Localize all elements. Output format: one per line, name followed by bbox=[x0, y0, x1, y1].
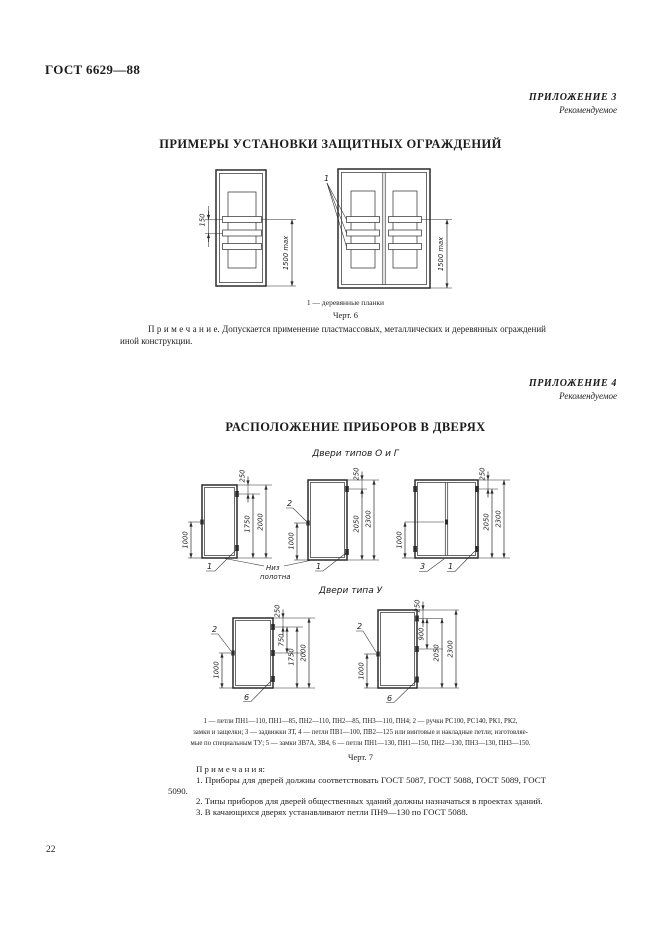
door-b: 250 2050 2300 1000 2 1 bbox=[286, 468, 379, 571]
appendix-3-label: ПРИЛОЖЕНИЕ 3 bbox=[529, 92, 617, 104]
door-c-dim-top: 250 bbox=[479, 468, 487, 481]
figure-6-label: Черт. 6 bbox=[30, 310, 661, 320]
appendix-4-notes: П р и м е ч а н и я: 1. Приборы для двер… bbox=[168, 764, 546, 818]
door-group-1-title: Двери типов О и Г bbox=[50, 449, 661, 459]
leaf-bottom-label: Низ полотна bbox=[225, 559, 310, 582]
legend-line-3: мые по специальным ТУ; 5 — замки ЗВ7А, З… bbox=[60, 738, 661, 749]
door-d-dim-hinge: 1750 bbox=[288, 648, 296, 665]
figure-7-row1-drawing: 250 1750 2000 1000 1 Низ полотна 250 205… bbox=[180, 462, 530, 588]
note-2: 2. Типы приборов для дверей общественных… bbox=[168, 796, 546, 807]
note-3: 3. В качающихся дверях устанавливают пет… bbox=[168, 807, 546, 818]
figure-7-legend: 1 — петли ПН1—110, ПН1—85, ПН2—110, ПН2—… bbox=[60, 716, 661, 749]
door-a-callout-hinge: 1 bbox=[207, 562, 212, 571]
door-a-dim-hinge: 1750 bbox=[244, 515, 252, 532]
door-d-dim-mid: 750 bbox=[278, 634, 286, 647]
fig6-double-door bbox=[338, 169, 430, 288]
legend-line-2: замки и защелки; 3 — задвижки ЗТ, 4 — пе… bbox=[60, 727, 661, 738]
door-b-dim-full: 2300 bbox=[365, 510, 373, 527]
fig6-dim-1500-right: 1500 max bbox=[422, 220, 453, 289]
appendix-3-note: П р и м е ч а н и е. Допускается примене… bbox=[120, 324, 546, 347]
door-d-callout-handle: 2 bbox=[212, 625, 217, 634]
appendix-4-label: ПРИЛОЖЕНИЕ 4 bbox=[529, 378, 617, 390]
fig6-dim-height-left-text: 1500 max bbox=[282, 235, 290, 270]
fig6-dim-spacing-text: 150 bbox=[199, 214, 207, 227]
door-b-callout-handle: 2 bbox=[287, 499, 292, 508]
door-e-dim-top: 250 bbox=[414, 600, 422, 613]
door-b-dim-hinge: 2050 bbox=[353, 515, 361, 532]
appendix-3-sublabel: Рекомендуемое bbox=[529, 104, 617, 116]
door-c-dim-handle: 1000 bbox=[396, 531, 404, 548]
door-c-dim-hinge: 2050 bbox=[483, 513, 491, 530]
figure-7-label: Черт. 7 bbox=[60, 752, 661, 762]
door-c: 1000 250 2050 2300 3 1 bbox=[396, 468, 511, 572]
fig6-dim-150: 150 bbox=[199, 206, 223, 247]
fig6-dim-height-right-text: 1500 max bbox=[437, 236, 445, 271]
figure-6-caption: 1 — деревянные планки bbox=[30, 298, 661, 307]
figure-6-drawing: 150 1500 max 1 1500 max bbox=[180, 162, 470, 302]
door-b-dim-handle: 1000 bbox=[288, 532, 296, 549]
door-c-dim-full: 2300 bbox=[495, 510, 503, 527]
appendix-4-heading: ПРИЛОЖЕНИЕ 4 Рекомендуемое bbox=[529, 378, 617, 402]
door-group-2-title: Двери типа У bbox=[40, 586, 661, 596]
door-c-callout-hinge: 1 bbox=[448, 562, 453, 571]
document-number: ГОСТ 6629—88 bbox=[45, 62, 140, 78]
note-1: 1. Приборы для дверей должны соответство… bbox=[168, 775, 546, 797]
appendix-4-title: РАСПОЛОЖЕНИЕ ПРИБОРОВ В ДВЕРЯХ bbox=[50, 420, 661, 435]
door-b-callout-hinge: 1 bbox=[316, 562, 321, 571]
appendix-4-sublabel: Рекомендуемое bbox=[529, 390, 617, 402]
door-e: 250 900 2050 2300 1000 2 6 bbox=[356, 600, 459, 703]
door-a-dim-full: 2000 bbox=[257, 513, 265, 530]
door-d: 250 750 1750 2000 1000 2 6 bbox=[211, 605, 315, 702]
door-a-dim-handle: 1000 bbox=[182, 531, 190, 548]
page-number: 22 bbox=[46, 845, 56, 855]
door-e-dim-mid: 900 bbox=[418, 628, 426, 641]
door-b-dim-top: 250 bbox=[353, 468, 361, 481]
fig6-single-door bbox=[216, 170, 266, 286]
door-e-callout-handle: 2 bbox=[357, 622, 362, 631]
fig6-callout-1: 1 bbox=[324, 174, 347, 247]
door-d-dim-top: 250 bbox=[274, 605, 282, 618]
door-d-dim-handle: 1000 bbox=[213, 661, 221, 678]
fig6-callout-text: 1 bbox=[324, 174, 329, 183]
appendix-3-title: ПРИМЕРЫ УСТАНОВКИ ЗАЩИТНЫХ ОГРАЖДЕНИЙ bbox=[0, 137, 661, 152]
figure-7-row2-drawing: 250 750 1750 2000 1000 2 6 250 900 2050 bbox=[195, 598, 485, 722]
door-e-dim-hinge: 2050 bbox=[433, 644, 441, 661]
door-d-dim-full: 2000 bbox=[300, 644, 308, 661]
legend-line-1: 1 — петли ПН1—110, ПН1—85, ПН2—110, ПН2—… bbox=[60, 716, 661, 727]
door-c-callout-latch: 3 bbox=[420, 562, 425, 571]
notes-title: П р и м е ч а н и я: bbox=[196, 764, 546, 775]
door-a: 250 1750 2000 1000 1 bbox=[182, 470, 273, 571]
leaf-bottom-line1: Низ bbox=[266, 564, 280, 572]
door-a-dim-top: 250 bbox=[239, 470, 247, 483]
door-e-dim-handle: 1000 bbox=[358, 662, 366, 679]
appendix-3-heading: ПРИЛОЖЕНИЕ 3 Рекомендуемое bbox=[529, 92, 617, 116]
leaf-bottom-line2: полотна bbox=[260, 573, 291, 581]
door-e-callout-hinge: 6 bbox=[387, 694, 392, 703]
door-d-callout-hinge: 6 bbox=[244, 693, 249, 702]
door-e-dim-full: 2300 bbox=[447, 640, 455, 657]
